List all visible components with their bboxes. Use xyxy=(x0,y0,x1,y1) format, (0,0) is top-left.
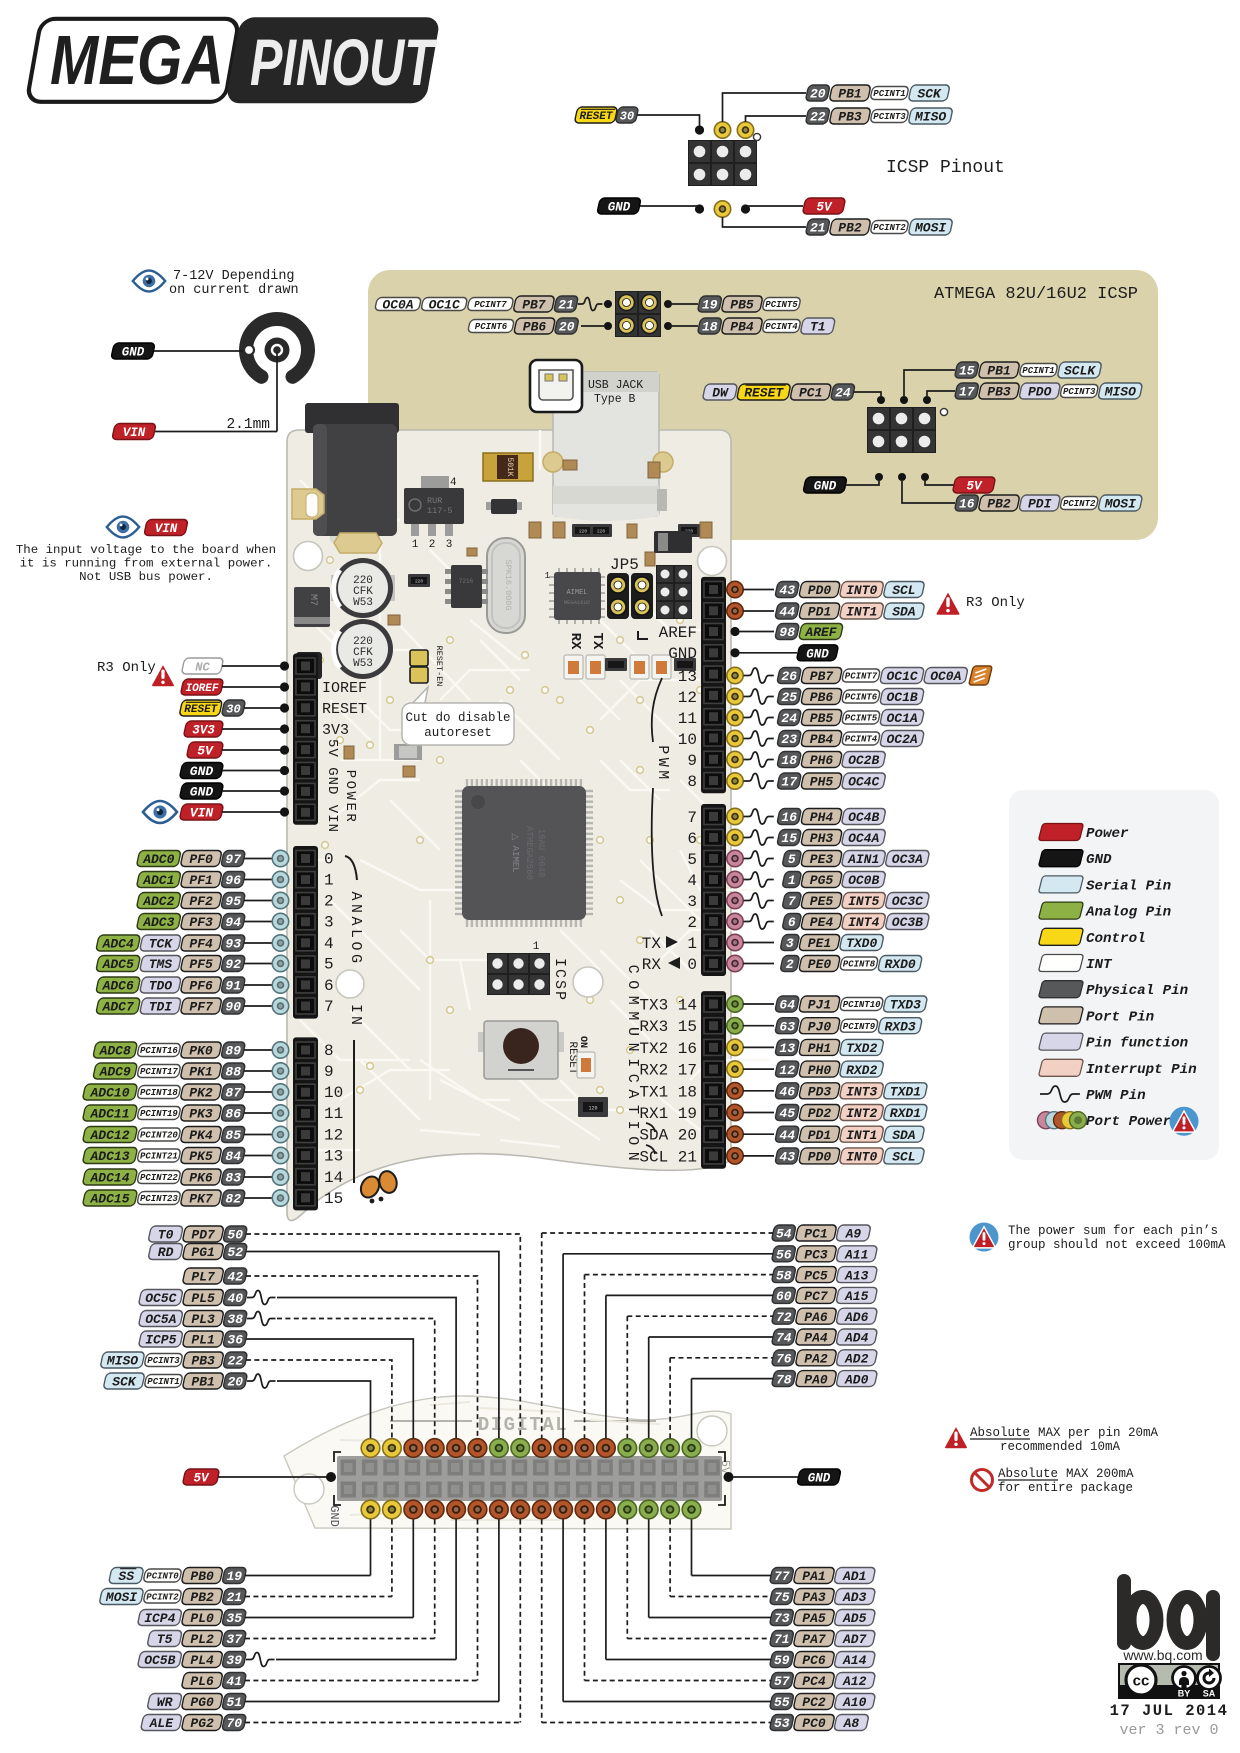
svg-text:PE1: PE1 xyxy=(808,936,831,951)
svg-text:PB1: PB1 xyxy=(987,364,1010,379)
svg-text:0: 0 xyxy=(687,956,697,974)
svg-text:INT0: INT0 xyxy=(846,583,877,598)
svg-text:220: 220 xyxy=(597,529,605,535)
svg-text:PB2: PB2 xyxy=(838,221,862,236)
svg-text:PB6: PB6 xyxy=(810,690,834,705)
svg-text:A12: A12 xyxy=(842,1674,867,1689)
svg-text:73: 73 xyxy=(774,1611,790,1626)
svg-text:PCINT9: PCINT9 xyxy=(843,1022,876,1032)
svg-text:PD0: PD0 xyxy=(808,583,832,598)
svg-text:ALE: ALE xyxy=(149,1716,175,1731)
svg-text:PA5: PA5 xyxy=(802,1611,826,1626)
svg-text:RXD0: RXD0 xyxy=(884,957,915,972)
svg-text:76: 76 xyxy=(776,1352,792,1367)
svg-text:TX: TX xyxy=(642,935,662,953)
svg-text:ATMEGA 82U/16U2 ICSP: ATMEGA 82U/16U2 ICSP xyxy=(934,285,1138,304)
svg-text:ADC11: ADC11 xyxy=(89,1107,129,1122)
svg-text:92: 92 xyxy=(225,957,241,972)
svg-text:RESET: RESET xyxy=(744,386,784,401)
svg-text:TX3 14: TX3 14 xyxy=(639,997,697,1015)
svg-text:42: 42 xyxy=(227,1270,243,1285)
svg-text:OC4A: OC4A xyxy=(848,831,879,846)
svg-text:IOREF: IOREF xyxy=(322,680,367,697)
svg-text:OC1A: OC1A xyxy=(886,711,917,726)
svg-text:PH1: PH1 xyxy=(808,1041,831,1056)
svg-text:A15: A15 xyxy=(844,1289,869,1304)
svg-text:RESET-EN: RESET-EN xyxy=(434,646,444,687)
svg-text:TX: TX xyxy=(589,633,605,650)
svg-text:ATMEGA2560: ATMEGA2560 xyxy=(524,826,534,880)
svg-text:RESET: RESET xyxy=(579,111,613,123)
svg-text:R3 Only: R3 Only xyxy=(966,595,1025,611)
svg-text:AD0: AD0 xyxy=(844,1372,869,1387)
svg-text:PE5: PE5 xyxy=(810,894,834,909)
svg-text:57: 57 xyxy=(774,1674,790,1689)
svg-text:44: 44 xyxy=(779,1128,795,1143)
svg-text:74: 74 xyxy=(776,1331,792,1346)
svg-text:PL6: PL6 xyxy=(190,1674,214,1689)
svg-text:PK3: PK3 xyxy=(189,1107,213,1122)
svg-text:M7: M7 xyxy=(307,594,318,606)
svg-text:26: 26 xyxy=(781,669,797,684)
svg-text:ADC15: ADC15 xyxy=(89,1192,129,1207)
svg-text:TX2 16: TX2 16 xyxy=(639,1040,697,1058)
svg-text:PCINT16: PCINT16 xyxy=(140,1046,178,1056)
svg-text:Pin function: Pin function xyxy=(1086,1036,1188,1052)
svg-text:3V3: 3V3 xyxy=(322,722,349,739)
svg-text:1: 1 xyxy=(324,872,334,890)
svg-text:95: 95 xyxy=(225,894,241,909)
svg-text:44: 44 xyxy=(779,605,795,620)
svg-text:96: 96 xyxy=(225,873,241,888)
svg-text:20: 20 xyxy=(227,1375,243,1390)
svg-text:PD0: PD0 xyxy=(808,1150,832,1165)
svg-text:PC4: PC4 xyxy=(802,1674,826,1689)
svg-text:MOSI: MOSI xyxy=(1104,497,1136,512)
svg-text:OC1C: OC1C xyxy=(886,669,917,684)
svg-text:PB1: PB1 xyxy=(191,1375,214,1390)
svg-text:23: 23 xyxy=(781,732,797,747)
svg-text:53: 53 xyxy=(774,1716,790,1731)
svg-text:PB3: PB3 xyxy=(987,385,1011,400)
svg-text:2.1mm: 2.1mm xyxy=(226,417,270,433)
svg-text:18: 18 xyxy=(781,753,797,768)
svg-text:A9: A9 xyxy=(845,1227,862,1242)
svg-text:17: 17 xyxy=(959,385,975,400)
svg-text:W53: W53 xyxy=(353,597,373,609)
svg-text:Not USB bus power.: Not USB bus power. xyxy=(79,570,213,584)
svg-text:RX: RX xyxy=(567,633,583,650)
svg-text:SCLK: SCLK xyxy=(1064,364,1096,379)
svg-text:2: 2 xyxy=(687,914,697,932)
svg-text:ADC0: ADC0 xyxy=(142,852,174,867)
svg-text:21: 21 xyxy=(810,221,826,236)
svg-text:46: 46 xyxy=(779,1085,795,1100)
svg-text:Port Power: Port Power xyxy=(1086,1114,1172,1130)
svg-text:0: 0 xyxy=(324,851,334,869)
svg-text:ADC1: ADC1 xyxy=(142,873,174,888)
svg-text:ANALOG: ANALOG xyxy=(347,891,364,966)
svg-text:RESET: RESET xyxy=(322,701,367,718)
svg-text:3: 3 xyxy=(786,936,794,951)
svg-text:RESET: RESET xyxy=(566,1041,578,1074)
svg-text:A14: A14 xyxy=(842,1653,867,1668)
svg-text:PDO: PDO xyxy=(1028,385,1052,400)
svg-text:7: 7 xyxy=(324,998,334,1016)
svg-text:5V: 5V xyxy=(966,480,983,494)
svg-text:8: 8 xyxy=(324,1042,334,1060)
svg-text:PK2: PK2 xyxy=(189,1086,213,1101)
svg-text:Cut do disable: Cut do disable xyxy=(405,711,510,725)
svg-text:ADC3: ADC3 xyxy=(142,915,174,930)
svg-text:10: 10 xyxy=(678,731,697,749)
svg-text:PJ1: PJ1 xyxy=(808,998,831,1013)
svg-text:1: 1 xyxy=(545,571,550,581)
svg-text:TXD1: TXD1 xyxy=(890,1085,921,1100)
svg-text:MEGA: MEGA xyxy=(50,21,224,99)
svg-text:60: 60 xyxy=(776,1289,792,1304)
svg-text:85: 85 xyxy=(225,1128,241,1143)
svg-text:TDO: TDO xyxy=(149,979,173,994)
svg-text:ICP5: ICP5 xyxy=(145,1333,176,1348)
svg-text:19: 19 xyxy=(702,298,718,313)
svg-text:COMMUNICATION: COMMUNICATION xyxy=(624,965,641,1168)
svg-text:5V: 5V xyxy=(816,201,833,215)
svg-text:PB0: PB0 xyxy=(190,1569,214,1584)
svg-text:T0: T0 xyxy=(158,1228,174,1243)
svg-text:PF5: PF5 xyxy=(189,957,213,972)
svg-text:cc: cc xyxy=(1133,1673,1150,1690)
svg-text:ADC6: ADC6 xyxy=(102,979,134,994)
svg-text:PD3: PD3 xyxy=(808,1085,832,1100)
svg-text:The input voltage to the board: The input voltage to the board when xyxy=(16,543,276,557)
svg-text:AREF: AREF xyxy=(659,624,697,642)
svg-text:SA: SA xyxy=(1203,1689,1216,1699)
svg-text:86: 86 xyxy=(225,1107,241,1122)
svg-text:9: 9 xyxy=(687,752,697,770)
svg-text:90: 90 xyxy=(225,1000,241,1015)
svg-text:501K: 501K xyxy=(505,457,514,476)
svg-text:25: 25 xyxy=(781,690,797,705)
svg-text:AD4: AD4 xyxy=(844,1331,869,1346)
svg-text:PH0: PH0 xyxy=(808,1063,832,1078)
svg-text:RUR: RUR xyxy=(427,496,442,506)
svg-text:PB7: PB7 xyxy=(810,669,834,684)
svg-text:4: 4 xyxy=(450,477,457,489)
svg-text:52: 52 xyxy=(227,1245,243,1260)
svg-text:PINOUT: PINOUT xyxy=(250,25,437,99)
svg-text:18: 18 xyxy=(702,320,718,335)
svg-text:GND: GND xyxy=(608,201,631,215)
svg-text:PC6: PC6 xyxy=(802,1653,826,1668)
svg-text:ver 3 rev 0: ver 3 rev 0 xyxy=(1119,1722,1218,1739)
svg-text:OC0B: OC0B xyxy=(848,873,879,888)
svg-text:OC3A: OC3A xyxy=(892,852,923,867)
svg-text:PL7: PL7 xyxy=(191,1270,215,1285)
svg-text:3V3: 3V3 xyxy=(192,724,215,738)
svg-text:36: 36 xyxy=(227,1333,243,1348)
svg-text:15: 15 xyxy=(781,831,797,846)
svg-text:89: 89 xyxy=(225,1044,241,1059)
svg-text:11: 11 xyxy=(678,710,697,728)
svg-text:TMS: TMS xyxy=(149,957,173,972)
svg-text:AREF: AREF xyxy=(804,625,837,640)
svg-text:21: 21 xyxy=(558,298,574,313)
svg-text:OC1B: OC1B xyxy=(886,690,917,705)
svg-text:11: 11 xyxy=(324,1105,343,1123)
svg-text:35: 35 xyxy=(226,1611,242,1626)
svg-text:SS: SS xyxy=(118,1569,134,1584)
svg-text:22: 22 xyxy=(810,110,826,125)
svg-text:1: 1 xyxy=(788,873,796,888)
svg-text:PCINT4: PCINT4 xyxy=(765,322,798,332)
svg-text:2: 2 xyxy=(324,893,334,911)
svg-text:13: 13 xyxy=(779,1041,795,1056)
svg-text:PCINT23: PCINT23 xyxy=(140,1194,178,1204)
svg-text:OC2B: OC2B xyxy=(848,753,879,768)
svg-text:PF1: PF1 xyxy=(189,873,212,888)
svg-text:ADC7: ADC7 xyxy=(102,1000,134,1015)
svg-text:98: 98 xyxy=(779,625,795,640)
svg-text:PL1: PL1 xyxy=(191,1333,214,1348)
svg-text:PA3: PA3 xyxy=(802,1590,826,1605)
svg-text:PCINT7: PCINT7 xyxy=(474,300,507,310)
svg-text:AIN1: AIN1 xyxy=(847,852,879,867)
svg-text:USB JACK: USB JACK xyxy=(588,379,643,392)
svg-text:63: 63 xyxy=(779,1019,795,1034)
svg-text:5: 5 xyxy=(324,956,334,974)
svg-text:GND: GND xyxy=(327,1505,341,1527)
svg-text:PB5: PB5 xyxy=(730,298,754,313)
svg-text:PK5: PK5 xyxy=(189,1149,213,1164)
svg-text:ADC14: ADC14 xyxy=(89,1171,129,1186)
svg-text:PA4: PA4 xyxy=(804,1331,828,1346)
svg-text:OC5B: OC5B xyxy=(144,1653,175,1668)
svg-text:GND: GND xyxy=(1086,852,1112,868)
svg-text:VIN: VIN xyxy=(190,806,214,821)
svg-text:PF6: PF6 xyxy=(189,979,213,994)
svg-text:A10: A10 xyxy=(842,1695,867,1710)
svg-text:INT4: INT4 xyxy=(848,915,879,930)
svg-text:PB3: PB3 xyxy=(838,110,862,125)
svg-text:PCINT22: PCINT22 xyxy=(140,1173,178,1183)
svg-text:64: 64 xyxy=(779,998,795,1013)
svg-text:PCINT2: PCINT2 xyxy=(146,1593,179,1603)
svg-text:12: 12 xyxy=(324,1127,343,1145)
svg-text:PL2: PL2 xyxy=(190,1632,214,1647)
svg-text:54: 54 xyxy=(776,1227,792,1242)
svg-text:93: 93 xyxy=(225,937,241,952)
svg-text:PCINT1: PCINT1 xyxy=(147,1377,179,1387)
svg-text:MOSI: MOSI xyxy=(105,1590,137,1605)
svg-text:12: 12 xyxy=(779,1063,795,1078)
svg-text:5V: 5V xyxy=(197,744,214,759)
svg-text:3: 3 xyxy=(446,539,453,551)
svg-text:PCINT7: PCINT7 xyxy=(845,672,878,682)
svg-text:Power: Power xyxy=(1086,826,1129,842)
svg-text:DIGITAL: DIGITAL xyxy=(478,1414,568,1436)
svg-text:82: 82 xyxy=(225,1192,241,1207)
svg-text:R3 Only: R3 Only xyxy=(97,660,156,676)
svg-text:PCINT19: PCINT19 xyxy=(140,1109,178,1119)
svg-text:PCINT17: PCINT17 xyxy=(140,1067,178,1077)
svg-text:PE3: PE3 xyxy=(810,852,834,867)
svg-text:PB3: PB3 xyxy=(191,1354,215,1369)
svg-text:PH3: PH3 xyxy=(810,831,834,846)
svg-text:www.bq.com: www.bq.com xyxy=(1122,1647,1202,1663)
svg-text:50: 50 xyxy=(227,1228,243,1243)
svg-text:5V: 5V xyxy=(193,1472,210,1486)
svg-text:GND: GND xyxy=(190,785,214,800)
svg-text:PCINT3: PCINT3 xyxy=(1063,387,1096,397)
svg-text:39: 39 xyxy=(226,1653,242,1668)
svg-text:4: 4 xyxy=(324,935,334,953)
svg-text:PDI: PDI xyxy=(1028,497,1052,512)
svg-text:1: 1 xyxy=(412,539,419,551)
svg-text:SDA 20: SDA 20 xyxy=(639,1127,697,1145)
svg-text:RX2 17: RX2 17 xyxy=(639,1062,697,1080)
svg-text:SCL: SCL xyxy=(892,583,915,598)
svg-text:T5: T5 xyxy=(157,1632,173,1647)
svg-text:AD5: AD5 xyxy=(842,1611,867,1626)
svg-text:PK0: PK0 xyxy=(189,1044,213,1059)
svg-text:WR: WR xyxy=(157,1695,173,1710)
svg-text:Absolute: Absolute xyxy=(998,1467,1058,1481)
svg-text:Type B: Type B xyxy=(594,393,636,406)
svg-text:84: 84 xyxy=(225,1149,241,1164)
svg-text:ADC13: ADC13 xyxy=(89,1149,129,1164)
svg-text:43: 43 xyxy=(779,583,795,598)
svg-text:16: 16 xyxy=(781,810,797,825)
svg-text:117-5: 117-5 xyxy=(427,506,453,516)
svg-text:AIMEL: AIMEL xyxy=(566,589,587,597)
svg-text:PCINT3: PCINT3 xyxy=(873,112,906,122)
svg-text:PE4: PE4 xyxy=(810,915,834,930)
svg-text:INT3: INT3 xyxy=(846,1085,877,1100)
svg-text:OC4C: OC4C xyxy=(848,775,879,790)
svg-text:AD1: AD1 xyxy=(842,1569,866,1584)
svg-text:9: 9 xyxy=(324,1063,334,1081)
svg-text:58: 58 xyxy=(776,1268,792,1283)
svg-text:15: 15 xyxy=(959,364,975,379)
svg-text:INT0: INT0 xyxy=(846,1150,877,1165)
svg-text:2: 2 xyxy=(786,957,794,972)
svg-text:RXD2: RXD2 xyxy=(846,1063,877,1078)
svg-text:PC5: PC5 xyxy=(804,1268,828,1283)
svg-text:A11: A11 xyxy=(844,1248,868,1263)
svg-text:IOREF: IOREF xyxy=(185,683,218,695)
svg-text:PL0: PL0 xyxy=(190,1611,214,1626)
svg-text:6: 6 xyxy=(324,977,334,995)
svg-text:PCINT1: PCINT1 xyxy=(1022,366,1054,376)
svg-text:SCK: SCK xyxy=(112,1375,137,1390)
svg-text:VIN: VIN xyxy=(155,522,178,536)
svg-text:PF4: PF4 xyxy=(189,937,213,952)
svg-text:PD1: PD1 xyxy=(808,1128,831,1143)
svg-text:78: 78 xyxy=(776,1372,792,1387)
svg-text:6: 6 xyxy=(687,830,697,848)
svg-text:T1: T1 xyxy=(810,320,826,335)
svg-text:MAX 200mA: MAX 200mA xyxy=(1066,1467,1134,1481)
svg-text:recommended 10mA: recommended 10mA xyxy=(1000,1440,1121,1454)
svg-text:56: 56 xyxy=(776,1248,792,1263)
svg-text:ICSP: ICSP xyxy=(551,958,568,1002)
svg-text:7: 7 xyxy=(687,809,697,827)
svg-text:PA7: PA7 xyxy=(802,1632,826,1647)
svg-text:JP5: JP5 xyxy=(610,556,639,574)
svg-text:PJ0: PJ0 xyxy=(808,1019,832,1034)
svg-text:SCK: SCK xyxy=(917,87,942,102)
svg-text:19: 19 xyxy=(226,1569,242,1584)
svg-text:INT2: INT2 xyxy=(846,1106,877,1121)
svg-text:group should not exceed 100mA: group should not exceed 100mA xyxy=(1008,1238,1226,1252)
svg-text:PF7: PF7 xyxy=(189,1000,213,1015)
svg-text:PF2: PF2 xyxy=(189,894,213,909)
svg-text:PH5: PH5 xyxy=(810,775,834,790)
svg-text:OC0A: OC0A xyxy=(382,298,413,313)
svg-text:3: 3 xyxy=(687,893,697,911)
svg-text:AD3: AD3 xyxy=(842,1590,867,1605)
svg-text:87: 87 xyxy=(225,1086,241,1101)
svg-text:PCINT6: PCINT6 xyxy=(475,322,508,332)
svg-text:59: 59 xyxy=(774,1653,790,1668)
svg-text:91: 91 xyxy=(225,979,241,994)
svg-text:RESET: RESET xyxy=(184,704,218,716)
svg-text:TX1 18: TX1 18 xyxy=(639,1083,697,1101)
svg-text:PB4: PB4 xyxy=(810,732,834,747)
svg-text:30: 30 xyxy=(620,109,634,123)
svg-text:3: 3 xyxy=(324,914,334,932)
svg-text:INT5: INT5 xyxy=(848,894,879,909)
svg-text:Physical Pin: Physical Pin xyxy=(1086,983,1188,999)
svg-text:SDA: SDA xyxy=(892,1128,916,1143)
svg-text:Control: Control xyxy=(1086,931,1146,947)
svg-text:PD1: PD1 xyxy=(808,605,831,620)
svg-text:SCL 21: SCL 21 xyxy=(639,1148,697,1166)
svg-text:4: 4 xyxy=(687,872,697,890)
svg-text:PA1: PA1 xyxy=(802,1569,825,1584)
svg-text:PG1: PG1 xyxy=(191,1245,214,1260)
svg-text:TXD3: TXD3 xyxy=(890,998,921,1013)
svg-text:120: 120 xyxy=(588,1106,597,1112)
svg-text:INT1: INT1 xyxy=(846,1128,877,1143)
svg-text:22: 22 xyxy=(227,1354,243,1369)
svg-text:GND: GND xyxy=(668,645,697,663)
svg-text:OC3B: OC3B xyxy=(892,915,923,930)
svg-text:41: 41 xyxy=(226,1674,242,1689)
svg-text:24: 24 xyxy=(835,386,851,401)
svg-text:ADC4: ADC4 xyxy=(102,937,134,952)
svg-text:NC: NC xyxy=(195,660,210,674)
svg-text:21: 21 xyxy=(226,1590,242,1605)
svg-text:PC3: PC3 xyxy=(804,1248,828,1263)
svg-text:PCINT8: PCINT8 xyxy=(843,960,876,970)
svg-text:IN: IN xyxy=(347,1004,364,1028)
svg-text:PCINT10: PCINT10 xyxy=(843,1000,881,1010)
svg-text:70: 70 xyxy=(226,1716,242,1731)
svg-text:220: 220 xyxy=(415,579,423,585)
svg-text:PL5: PL5 xyxy=(191,1291,215,1306)
svg-text:MISO: MISO xyxy=(106,1354,138,1369)
svg-text:88: 88 xyxy=(225,1065,241,1080)
svg-text:20: 20 xyxy=(810,87,826,102)
svg-text:40: 40 xyxy=(227,1291,243,1306)
svg-text:ADC5: ADC5 xyxy=(102,957,134,972)
svg-text:OC1C: OC1C xyxy=(429,298,460,313)
svg-text:PCINT21: PCINT21 xyxy=(140,1152,178,1162)
svg-text:Absolute: Absolute xyxy=(970,1426,1030,1440)
svg-text:72: 72 xyxy=(776,1310,792,1325)
